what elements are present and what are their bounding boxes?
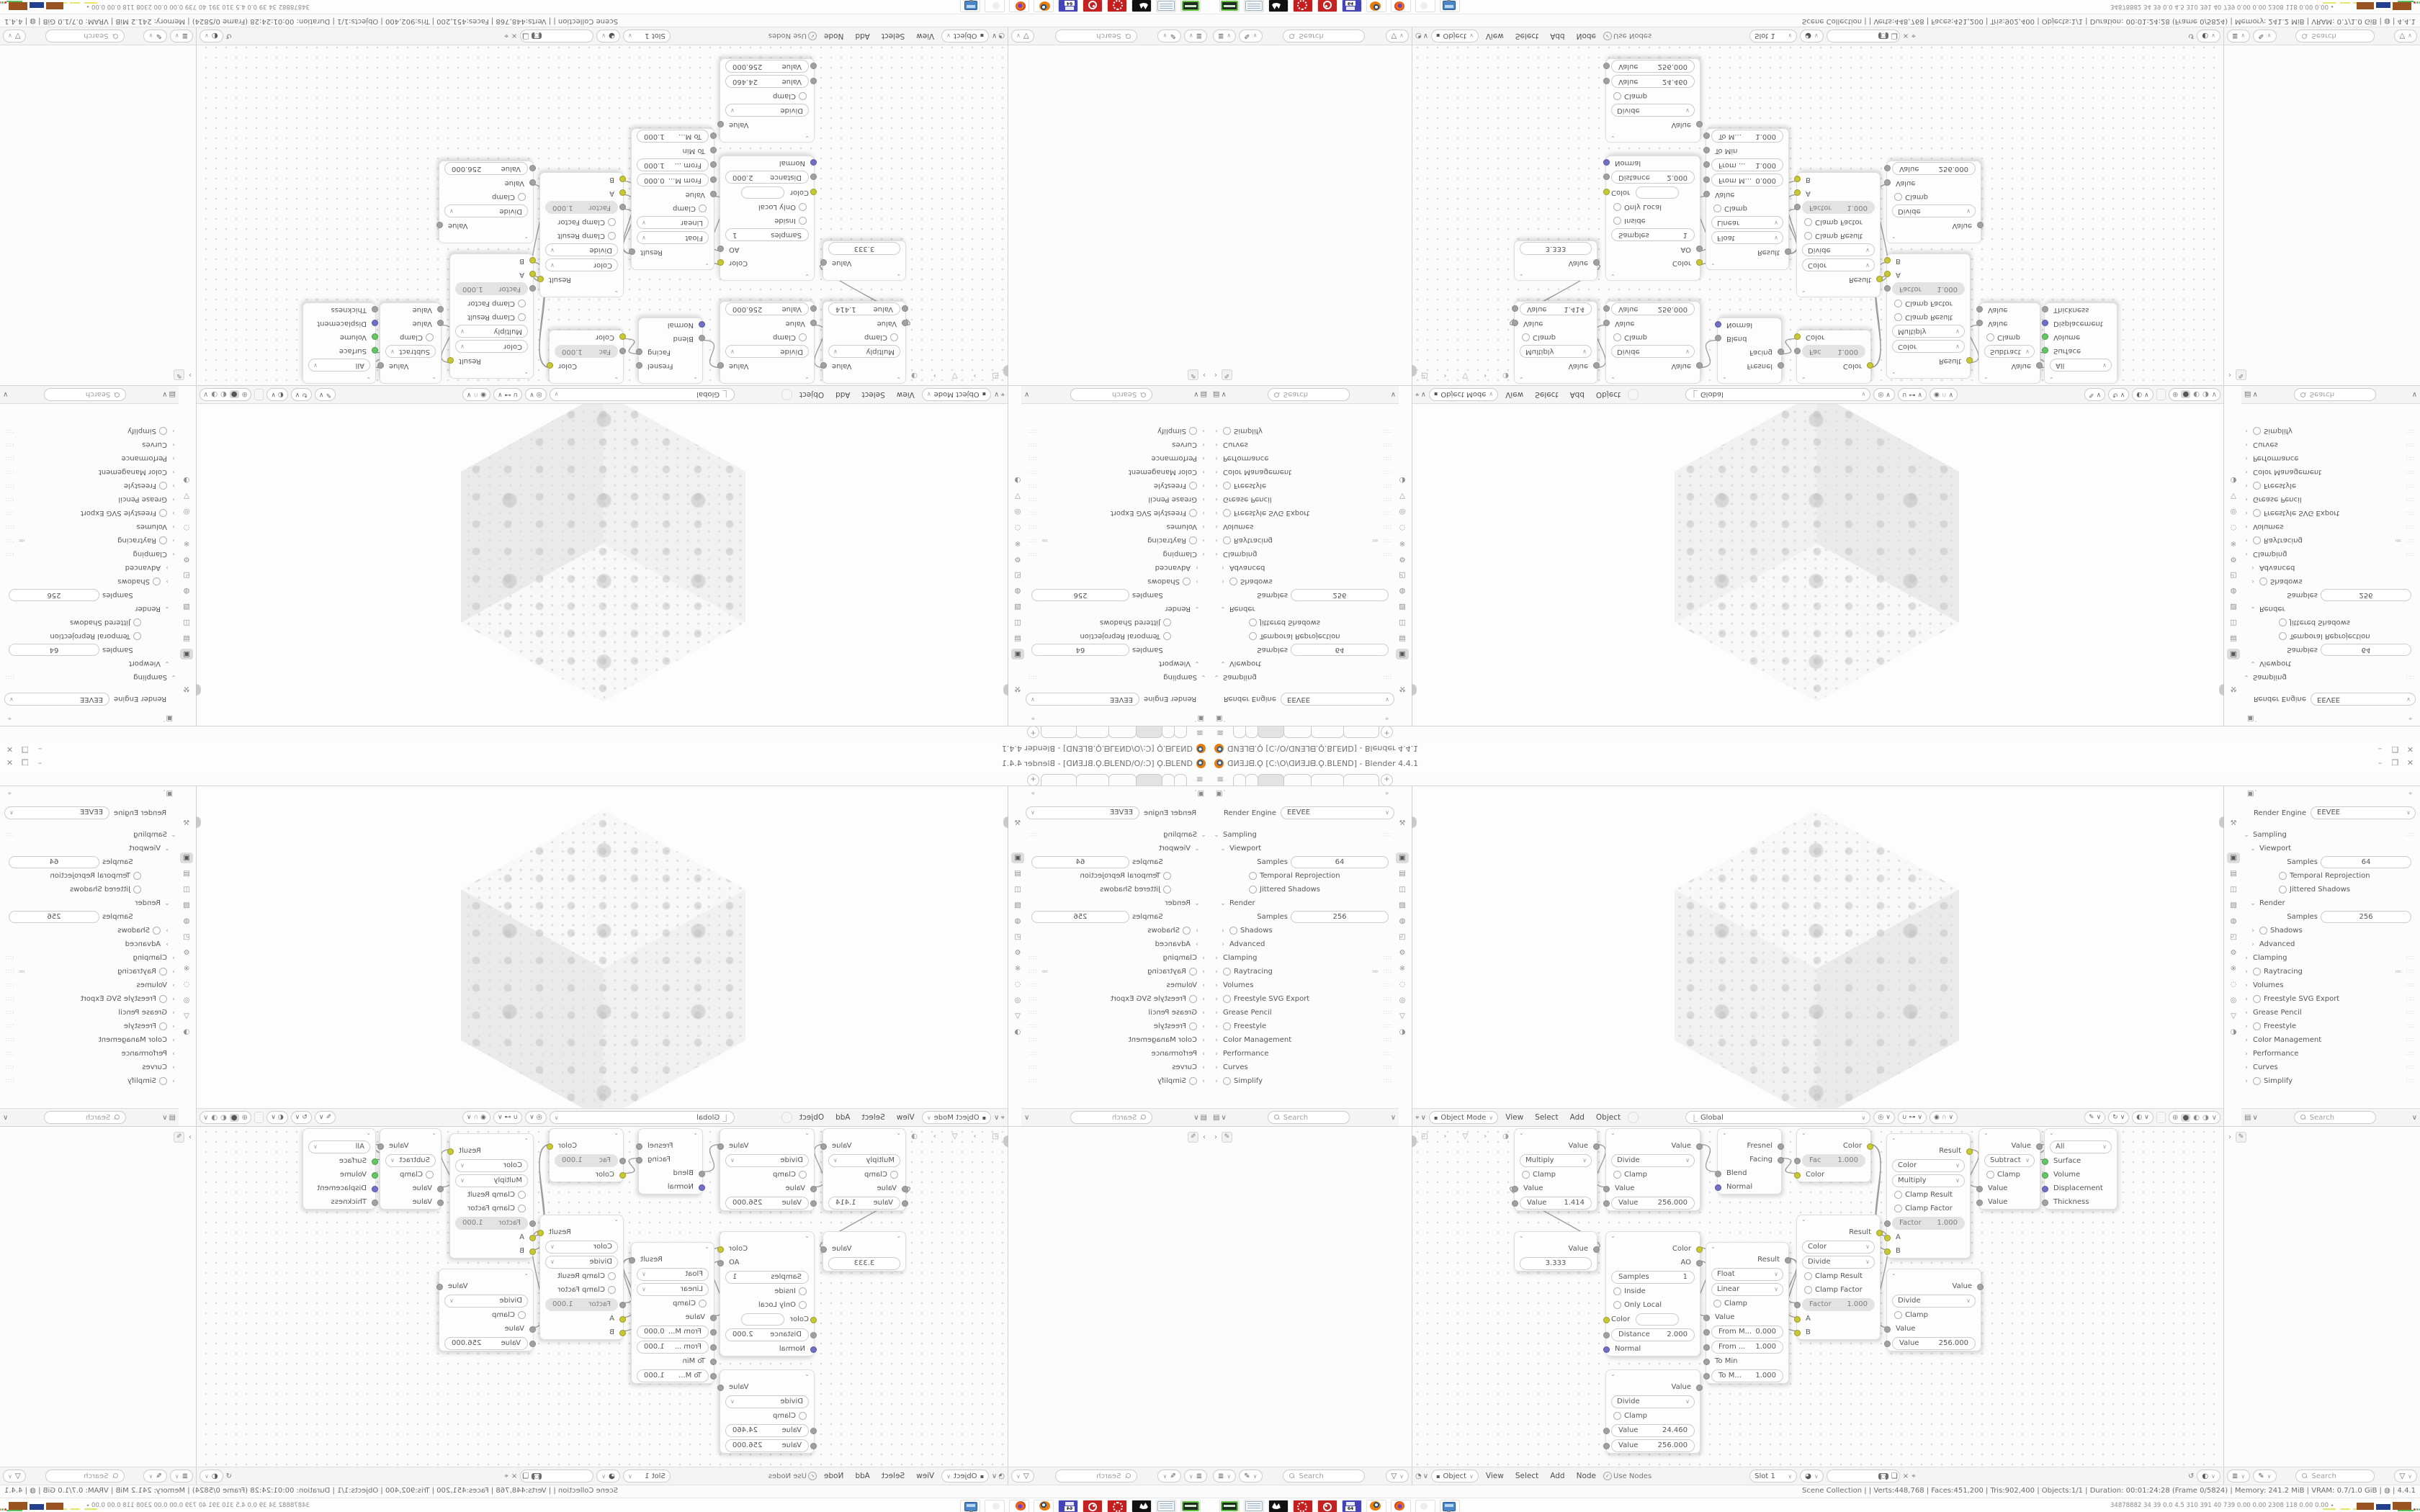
search-input[interactable]: Search (44, 388, 126, 401)
filter-button[interactable]: ▽∨ (3, 30, 26, 42)
toolbar-pull-tab[interactable] (1412, 684, 1417, 696)
gray-socket[interactable] (1703, 1344, 1710, 1351)
snap-toggle[interactable]: ∪⊶∨ (493, 388, 522, 401)
gray-socket[interactable] (1512, 306, 1518, 312)
render-engine-select[interactable]: EEVEE (2311, 693, 2416, 706)
yellow-socket[interactable] (619, 190, 626, 197)
property-row-grease-pencil[interactable]: ›Grease Pencil∷∷ (3, 492, 177, 506)
gray-socket[interactable] (1884, 1341, 1891, 1347)
gray-socket[interactable] (1603, 63, 1610, 70)
all-select[interactable]: All (2050, 359, 2112, 372)
yellow-socket[interactable] (529, 258, 536, 264)
properties-tab-material-icon[interactable]: ◑ (1396, 474, 1409, 485)
property-row-performance[interactable]: ›Performance∷∷ (1026, 1047, 1207, 1061)
editor-type-icon[interactable]: ▤∨ (2244, 1114, 2258, 1122)
menu-add[interactable]: Add (851, 1472, 874, 1480)
workspace-tab-6[interactable] (1343, 774, 1379, 786)
property-row-simplify[interactable]: ›Simplify∷∷ (2243, 424, 2417, 438)
gray-socket[interactable] (1593, 1143, 1600, 1150)
gray-socket[interactable] (1794, 1302, 1801, 1308)
math-divide-3-node[interactable]: ⌄ValueDivideClampValueValue256.000 (439, 1269, 534, 1351)
gray-socket[interactable] (1603, 1332, 1610, 1338)
value-field[interactable]: Distance2.000 (725, 1328, 809, 1341)
properties-tab-tool-icon[interactable]: ⚒ (1396, 818, 1409, 829)
snap-refresh-button[interactable]: ↺ (2188, 1472, 2194, 1480)
proportional-edit-toggle[interactable]: ◉∩∨ (462, 388, 490, 401)
browse-material-button[interactable]: ◕∨ (596, 30, 620, 42)
property-row-freestyle-svg-export[interactable]: ›Freestyle SVG Export∷∷ (2243, 506, 2417, 520)
filter-id-type-select[interactable]: ✎∨ (144, 1470, 167, 1482)
menu-add[interactable]: Add (831, 1113, 854, 1122)
gray-socket[interactable] (1696, 363, 1703, 369)
gray-socket[interactable] (710, 192, 717, 198)
multiply-select[interactable]: Multiply (828, 346, 900, 359)
property-row-advanced[interactable]: ›Advanced (2243, 937, 2417, 951)
yellow-socket[interactable] (1696, 1246, 1703, 1253)
property-row-advanced[interactable]: ›Advanced (3, 937, 177, 951)
properties-tab-render-icon[interactable]: ▣ (1011, 649, 1024, 660)
mix-color-3-node[interactable]: ⌄ResultColorMultiplyClamp ResultClamp Fa… (1886, 253, 1971, 379)
shader-editor[interactable]: ◰›▽›◑ ⌄ValueMultiplyClampValueValue1.414… (197, 1127, 1008, 1485)
multiply-select[interactable]: Multiply (455, 1174, 528, 1187)
subtract-select[interactable]: Subtract (385, 346, 436, 359)
value-field[interactable]: Value24.460 (725, 76, 809, 89)
value-field[interactable]: Value1.414 (1520, 303, 1592, 316)
property-row-freestyle[interactable]: ›Freestyle∷∷ (2243, 479, 2417, 492)
properties-tab-object-icon[interactable]: ◰ (180, 932, 193, 942)
shader-type-select[interactable]: ▪Object∨ (1431, 30, 1479, 42)
gray-socket[interactable] (2036, 363, 2043, 369)
property-row-simplify[interactable]: ›Simplify∷∷ (1213, 1074, 1394, 1088)
property-row-freestyle-svg-export[interactable]: ›Freestyle SVG Export∷∷ (1026, 506, 1207, 520)
toolbar-pull-tab[interactable] (1412, 816, 1417, 828)
math-divide-1-node[interactable]: ⌄ValueDivideClampValueValue256.000 (1605, 1128, 1700, 1211)
math-divide-2-node[interactable]: ⌄ValueDivideClampValue24.460Value256.000 (720, 58, 815, 143)
filter-id-type-select[interactable]: ✎∨ (1239, 30, 1262, 42)
properties-tab-particles-icon[interactable]: ※ (2227, 538, 2240, 549)
value-field[interactable]: Value1.414 (1520, 1197, 1592, 1210)
green-socket[interactable] (2042, 348, 2048, 354)
gray-socket[interactable] (710, 177, 717, 184)
material-output-node[interactable]: ⌄AllSurfaceVolumeDisplacementThickness (2044, 1128, 2117, 1210)
toolbar-pull-tab[interactable] (1003, 365, 1008, 377)
yellow-socket[interactable] (1876, 1230, 1883, 1236)
property-row-raytracing[interactable]: ›Raytracing≔∷∷ (3, 965, 177, 978)
gray-socket[interactable] (1715, 1171, 1721, 1177)
properties-tab-world-icon[interactable]: ◍ (1396, 585, 1409, 596)
shader-type-select[interactable]: ▪Object∨ (1431, 1470, 1479, 1482)
yellow-socket[interactable] (1603, 1317, 1610, 1323)
mix-color-1-node[interactable]: ⌄ColorFac1.000Color (1796, 1128, 1871, 1182)
menu-select[interactable]: Select (1511, 32, 1543, 40)
properties-tab-world-icon[interactable]: ◍ (2227, 585, 2240, 596)
layer-weight-node[interactable]: ⌄FresnelFacingBlendNormal (1717, 318, 1782, 384)
property-row-samples[interactable]: Samples256 (3, 588, 177, 602)
render-engine-select[interactable]: EEVEE (1026, 693, 1139, 706)
value-field[interactable]: Factor1.000 (1802, 1298, 1875, 1311)
property-row-color-management[interactable]: ›Color Management∷∷ (2243, 465, 2417, 479)
filter-id-type-select[interactable]: ✎∨ (2253, 30, 2276, 42)
property-row-samples[interactable]: Samples64 (3, 855, 177, 869)
math-divide-3-node[interactable]: ⌄ValueDivideClampValueValue256.000 (1886, 1269, 1981, 1351)
filter-button[interactable]: ▽∨ (1011, 1470, 1034, 1482)
divide-select[interactable]: Divide (444, 205, 528, 218)
green-socket[interactable] (372, 348, 378, 354)
property-row-color-management[interactable]: ›Color Management∷∷ (1026, 1033, 1207, 1047)
gray-socket[interactable] (1603, 1443, 1610, 1449)
gray-socket[interactable] (1778, 1143, 1784, 1150)
options-chevron[interactable]: ∨ (2412, 1114, 2417, 1122)
properties-tab-physics-icon[interactable]: ◌ (180, 522, 193, 533)
annotate-tool-button[interactable]: ✎∨ (2084, 1111, 2105, 1124)
properties-tab-scene-icon[interactable]: ▧ (2227, 601, 2240, 612)
divide-select[interactable]: Divide (725, 346, 809, 359)
yellow-socket[interactable] (1794, 1330, 1801, 1336)
value-field[interactable]: From M...0.000 (637, 1326, 709, 1338)
value-field[interactable]: From M...0.000 (1711, 1326, 1783, 1338)
value-field[interactable]: 64 (2321, 644, 2411, 656)
math-subtract-node[interactable]: ⌄ValueSubtractClampValueValue (1978, 302, 2040, 384)
workspace-tab-3[interactable] (1136, 726, 1162, 738)
subtract-select[interactable]: Subtract (1984, 1154, 2035, 1167)
properties-tab-tool-icon[interactable]: ⚒ (1396, 683, 1409, 694)
workspace-tab-5[interactable] (1311, 774, 1344, 786)
gray-socket[interactable] (437, 1186, 444, 1192)
properties-tab-data-icon[interactable]: ▽ (1396, 490, 1409, 501)
gizmo-toggle[interactable]: ↻∨ (291, 1111, 312, 1124)
property-row-jittered-shadows[interactable]: Jittered Shadows (2243, 883, 2417, 896)
gray-socket[interactable] (619, 1158, 626, 1164)
editor-type-icon[interactable]: ◔∨ (1415, 32, 1428, 40)
taskbar-icon-red-gear[interactable] (1317, 1500, 1337, 1512)
menu-select[interactable]: Select (877, 32, 909, 40)
property-row-freestyle[interactable]: ›Freestyle∷∷ (3, 1020, 177, 1033)
property-row-clamping[interactable]: ›Clamping∷∷ (1213, 951, 1394, 965)
overlays-toggle[interactable]: ◐∨ (266, 388, 287, 401)
properties-tab-tool-icon[interactable]: ⚒ (1011, 683, 1024, 694)
value-field[interactable]: 64 (1031, 644, 1129, 656)
restore-button[interactable]: ❐ (2391, 744, 2401, 754)
annotate-tool-button[interactable]: ✎∨ (315, 1111, 336, 1124)
properties-tab-view-layer-icon[interactable]: ◫ (2227, 617, 2240, 628)
gray-socket[interactable] (1696, 246, 1703, 253)
properties-tab-scene-icon[interactable]: ▧ (1396, 601, 1409, 612)
value-field[interactable]: 3.333 (1520, 1257, 1592, 1270)
gray-socket[interactable] (1884, 1220, 1891, 1227)
gray-socket[interactable] (1884, 286, 1891, 292)
gray-socket[interactable] (717, 1143, 724, 1150)
all-select[interactable]: All (308, 359, 370, 372)
pivot-point-select[interactable]: ◎∨ (525, 388, 546, 401)
ambient-occlusion-node[interactable]: ⌄ColorAOSamples1InsideOnly LocalColorDis… (720, 156, 815, 281)
gray-socket[interactable] (710, 1344, 717, 1351)
multiply-select[interactable]: Multiply (1892, 1174, 1965, 1187)
mode-extra-button[interactable] (781, 389, 792, 400)
value-node-node[interactable]: ⌄Value3.333 (823, 1231, 906, 1272)
shading-mode-group[interactable]: ⊕●◐◑∨ (200, 1111, 251, 1124)
property-row-curves[interactable]: ›Curves∷∷ (2243, 438, 2417, 451)
yellow-socket[interactable] (529, 1248, 536, 1255)
value-field[interactable]: From M...0.000 (1711, 174, 1783, 187)
yellow-socket[interactable] (537, 276, 544, 283)
value-field[interactable]: Value1.414 (828, 303, 900, 316)
property-row-samples[interactable]: Samples64 (2243, 643, 2417, 657)
xray-toggle[interactable] (254, 389, 264, 400)
properties-tab-scene-icon[interactable]: ▧ (180, 601, 193, 612)
taskbar-icon-firefox[interactable] (1391, 0, 1411, 12)
value-field[interactable]: Value256.000 (1611, 60, 1695, 73)
properties-tab-material-icon[interactable]: ◑ (180, 1027, 193, 1038)
property-row-render[interactable]: ⌄Render (3, 896, 177, 910)
properties-tab-data-icon[interactable]: ▽ (1011, 490, 1024, 501)
outliner-root-item[interactable]: ›✎ (1188, 369, 1206, 380)
menu-view[interactable]: View (912, 1472, 938, 1480)
green-socket[interactable] (372, 334, 378, 341)
properties-tab-tool-icon[interactable]: ⚒ (1011, 818, 1024, 829)
gray-socket[interactable] (1512, 1200, 1518, 1207)
layer-weight-node[interactable]: ⌄FresnelFacingBlendNormal (1717, 1128, 1782, 1194)
property-row-render[interactable]: ⌄Render (1026, 602, 1207, 616)
value-field[interactable]: 256 (1291, 911, 1389, 923)
yellow-socket[interactable] (717, 260, 724, 266)
property-row-volumes[interactable]: ›Volumes∷∷ (3, 978, 177, 992)
color-swatch[interactable] (741, 1313, 784, 1326)
pin-icon[interactable]: ⌖ (7, 790, 12, 798)
unlink-button[interactable]: × (1903, 32, 1909, 40)
gray-socket[interactable] (902, 320, 908, 327)
gray-socket[interactable] (2042, 1200, 2048, 1206)
gray-socket[interactable] (437, 320, 444, 327)
gray-socket[interactable] (372, 1200, 378, 1206)
property-row-simplify[interactable]: ›Simplify∷∷ (3, 424, 177, 438)
workspace-tab-2[interactable] (1162, 774, 1175, 786)
snap-toggle[interactable]: ∪⊶∨ (1898, 388, 1927, 401)
linear-select[interactable]: Linear (637, 217, 709, 230)
property-row-volumes[interactable]: ›Volumes∷∷ (1026, 520, 1207, 534)
properties-tab-particles-icon[interactable]: ※ (1396, 538, 1409, 549)
value-field[interactable]: From M...0.000 (637, 174, 709, 187)
menu-add[interactable]: Add (1546, 1472, 1569, 1480)
workspace-tab-3[interactable] (1258, 726, 1284, 738)
value-field[interactable]: Value256.000 (725, 303, 809, 316)
search-input[interactable]: Search (2294, 1111, 2376, 1124)
use-nodes-checkbox[interactable]: ✓Use Nodes (1603, 1472, 1652, 1480)
property-row-performance[interactable]: ›Performance∷∷ (1213, 451, 1394, 465)
property-row-volumes[interactable]: ›Volumes∷∷ (1213, 978, 1394, 992)
property-row-grease-pencil[interactable]: ›Grease Pencil∷∷ (2243, 492, 2417, 506)
taskbar-icon-ghost[interactable] (1415, 1500, 1435, 1512)
properties-tab-material-icon[interactable]: ◑ (1396, 1027, 1409, 1038)
gray-socket[interactable] (1785, 1257, 1791, 1264)
gizmo-toggle[interactable]: ↻∨ (291, 388, 312, 401)
properties-tab-view-layer-icon[interactable]: ◫ (2227, 884, 2240, 895)
property-row-color-management[interactable]: ›Color Management∷∷ (1213, 465, 1394, 479)
value-field[interactable]: Samples1 (725, 1271, 809, 1284)
yellow-socket[interactable] (1794, 334, 1801, 341)
menu-add[interactable]: Add (831, 390, 854, 399)
property-row-raytracing[interactable]: ›Raytracing≔∷∷ (2243, 534, 2417, 547)
property-row-freestyle[interactable]: ›Freestyle∷∷ (3, 479, 177, 492)
fake-user-shield-icon[interactable]: ◙ (532, 33, 542, 40)
editor-type-icon[interactable]: ▤∨ (1213, 391, 1227, 399)
taskbar-icon-blender[interactable] (1034, 0, 1054, 12)
property-row-temporal-reprojection[interactable]: Temporal Reprojection (1026, 869, 1207, 883)
editor-type-icon[interactable]: ▤∨ (1193, 391, 1207, 399)
property-row-temporal-reprojection[interactable]: Temporal Reprojection (3, 629, 177, 643)
yellow-socket[interactable] (619, 1172, 626, 1179)
property-row-freestyle-svg-export[interactable]: ›Freestyle SVG Export∷∷ (1213, 992, 1394, 1006)
property-row-samples[interactable]: Samples256 (1026, 588, 1207, 602)
menu-icon[interactable]: ≡ (1196, 728, 1204, 738)
workspace-tab-3[interactable] (1136, 774, 1162, 786)
gray-socket[interactable] (1593, 1246, 1600, 1253)
map-range-node[interactable]: ⌄ResultFloatLinearClampValueFrom M...0.0… (631, 128, 714, 270)
properties-tab-physics-icon[interactable]: ◌ (1396, 522, 1409, 533)
property-row-color-management[interactable]: ›Color Management∷∷ (3, 1033, 177, 1047)
gray-socket[interactable] (1603, 320, 1610, 327)
value-field[interactable]: Value24.460 (1611, 76, 1695, 89)
value-field[interactable]: To M...1.000 (637, 130, 709, 143)
multiply-select[interactable]: Multiply (828, 1154, 900, 1167)
property-row-samples[interactable]: Samples64 (1213, 643, 1394, 657)
menu-add[interactable]: Add (1566, 1113, 1589, 1122)
add-workspace-button[interactable]: + (1027, 774, 1039, 786)
properties-tab-object-icon[interactable]: ◰ (1396, 570, 1409, 580)
divide-select[interactable]: Divide (725, 1395, 809, 1408)
gray-socket[interactable] (1593, 260, 1600, 266)
pin-icon[interactable]: ⌖ (7, 714, 12, 722)
value-field[interactable]: 64 (9, 644, 99, 656)
value-field[interactable]: 3.333 (1520, 243, 1592, 256)
yellow-socket[interactable] (1794, 1172, 1801, 1179)
float-select[interactable]: Float (637, 1268, 709, 1281)
taskbar-icon-ghost[interactable] (985, 1500, 1005, 1512)
display-mode-select[interactable]: ≣∨ (2227, 1470, 2250, 1482)
filter-button[interactable]: ▽∨ (3, 1470, 26, 1482)
taskbar-icon-red-gear[interactable] (1083, 1500, 1103, 1512)
purple-socket[interactable] (2042, 1186, 2048, 1192)
yellow-socket[interactable] (1966, 358, 1973, 364)
yellow-socket[interactable] (619, 176, 626, 183)
linear-select[interactable]: Linear (1711, 1283, 1783, 1296)
menu-select[interactable]: Select (1531, 1113, 1562, 1122)
property-row-grease-pencil[interactable]: ›Grease Pencil∷∷ (1213, 1006, 1394, 1020)
value-field[interactable]: Samples1 (1611, 1271, 1695, 1284)
gray-socket[interactable] (529, 180, 536, 186)
property-row-raytracing[interactable]: ›Raytracing≔∷∷ (1026, 965, 1207, 978)
editor-type-icon[interactable]: ▤∨ (2244, 391, 2258, 399)
property-row-render[interactable]: ⌄Render (1213, 896, 1394, 910)
properties-tab-render-icon[interactable]: ▣ (1396, 649, 1409, 660)
gray-socket[interactable] (717, 1385, 724, 1391)
property-row-raytracing[interactable]: ›Raytracing≔∷∷ (1026, 534, 1207, 547)
color-swatch[interactable] (1636, 186, 1679, 199)
value-field[interactable]: From ...1.000 (637, 1341, 709, 1354)
property-row-performance[interactable]: ›Performance∷∷ (3, 1047, 177, 1061)
options-chevron[interactable]: ∨ (1391, 391, 1396, 399)
proportional-edit-toggle[interactable]: ◉∩∨ (462, 1111, 490, 1124)
workspace-tab-2[interactable] (1162, 726, 1175, 738)
gray-socket[interactable] (636, 349, 642, 356)
properties-tab-particles-icon[interactable]: ※ (2227, 963, 2240, 974)
purple-socket[interactable] (2042, 320, 2048, 327)
material-output-node[interactable]: ⌄AllSurfaceVolumeDisplacementThickness (302, 1128, 376, 1210)
taskbar-icon-notepad[interactable] (1156, 0, 1176, 12)
copy-icon[interactable]: ❏ (522, 32, 529, 40)
divide-select[interactable]: Divide (1611, 104, 1695, 117)
purple-socket[interactable] (810, 160, 817, 166)
properties-tab-data-icon[interactable]: ▽ (180, 490, 193, 501)
use-nodes-checkbox[interactable]: ✓Use Nodes (768, 32, 817, 40)
gray-socket[interactable] (699, 1171, 705, 1177)
taskbar-icon-notepad[interactable] (1244, 1500, 1264, 1512)
property-row-viewport[interactable]: ⌄Viewport (1026, 842, 1207, 855)
gray-socket[interactable] (810, 306, 817, 312)
gray-socket[interactable] (636, 363, 642, 369)
properties-tab-object-icon[interactable]: ◰ (2227, 932, 2240, 942)
properties-tab-tool-icon[interactable]: ⚒ (2227, 683, 2240, 694)
map-range-node[interactable]: ⌄ResultFloatLinearClampValueFrom M...0.0… (631, 1242, 714, 1384)
yellow-socket[interactable] (1867, 363, 1873, 369)
gray-socket[interactable] (436, 1284, 443, 1290)
gray-socket[interactable] (1512, 320, 1518, 327)
properties-tab-data-icon[interactable]: ▽ (1396, 1011, 1409, 1022)
value-field[interactable]: Factor1.000 (545, 1298, 618, 1311)
property-row-render[interactable]: ⌄Render (1026, 896, 1207, 910)
property-row-shadows[interactable]: ›Shadows (1213, 924, 1394, 937)
taskbar-icon-blender[interactable] (1034, 1500, 1054, 1512)
search-input[interactable]: Search (1070, 388, 1152, 401)
mix-color-1-node[interactable]: ⌄ColorFac1.000Color (1796, 330, 1871, 384)
property-row-viewport[interactable]: ⌄Viewport (1213, 842, 1394, 855)
properties-tab-material-icon[interactable]: ◑ (2227, 474, 2240, 485)
mix-color-3-node[interactable]: ⌄ResultColorMultiplyClamp ResultClamp Fa… (449, 1133, 534, 1259)
taskbar-icon-notepad[interactable] (1244, 0, 1264, 12)
gray-socket[interactable] (1603, 1428, 1610, 1434)
menu-object[interactable]: Object (795, 1113, 828, 1122)
math-multiply-node[interactable]: ⌄ValueMultiplyClampValueValue1.414 (823, 1128, 906, 1211)
property-row-volumes[interactable]: ›Volumes∷∷ (1026, 978, 1207, 992)
gray-socket[interactable] (1778, 1157, 1784, 1164)
options-chevron[interactable]: ∨ (3, 1114, 8, 1122)
value-field[interactable]: Value256.000 (444, 1337, 528, 1350)
options-chevron[interactable]: ∨ (2412, 391, 2417, 399)
transform-orientation-select[interactable]: ⎿ Global∨ (1685, 1111, 1870, 1124)
taskbar-icon-gimp[interactable] (1131, 0, 1152, 12)
property-row-performance[interactable]: ›Performance∷∷ (1026, 451, 1207, 465)
property-row-curves[interactable]: ›Curves∷∷ (1213, 1061, 1394, 1074)
value-field[interactable]: 3.333 (828, 243, 900, 256)
menu-node[interactable]: Node (820, 1472, 848, 1480)
properties-tab-constraints-icon[interactable]: ◎ (1011, 506, 1024, 517)
gray-socket[interactable] (710, 1315, 717, 1321)
value-field[interactable]: Value1.414 (828, 1197, 900, 1210)
value-field[interactable]: Factor1.000 (455, 283, 528, 296)
value-field[interactable]: Value256.000 (1892, 1337, 1976, 1350)
toolbar-pull-tab[interactable] (1003, 1135, 1008, 1147)
property-row-freestyle-svg-export[interactable]: ›Freestyle SVG Export∷∷ (3, 992, 177, 1006)
gray-socket[interactable] (372, 307, 378, 313)
fake-user-shield-icon[interactable]: ◙ (1878, 1473, 1888, 1480)
value-field[interactable]: Samples1 (725, 229, 809, 242)
property-row-viewport[interactable]: ⌄Viewport (1026, 657, 1207, 670)
toolbar-pull-tab[interactable] (1003, 816, 1008, 828)
shader-type-select[interactable]: ▪Object∨ (941, 30, 989, 42)
all-select[interactable]: All (2050, 1140, 2112, 1153)
display-mode-select[interactable]: ≣∨ (170, 30, 193, 42)
property-row-raytracing[interactable]: ›Raytracing≔∷∷ (3, 534, 177, 547)
ambient-occlusion-node[interactable]: ⌄ColorAOSamples1InsideOnly LocalColorDis… (1605, 1231, 1700, 1356)
